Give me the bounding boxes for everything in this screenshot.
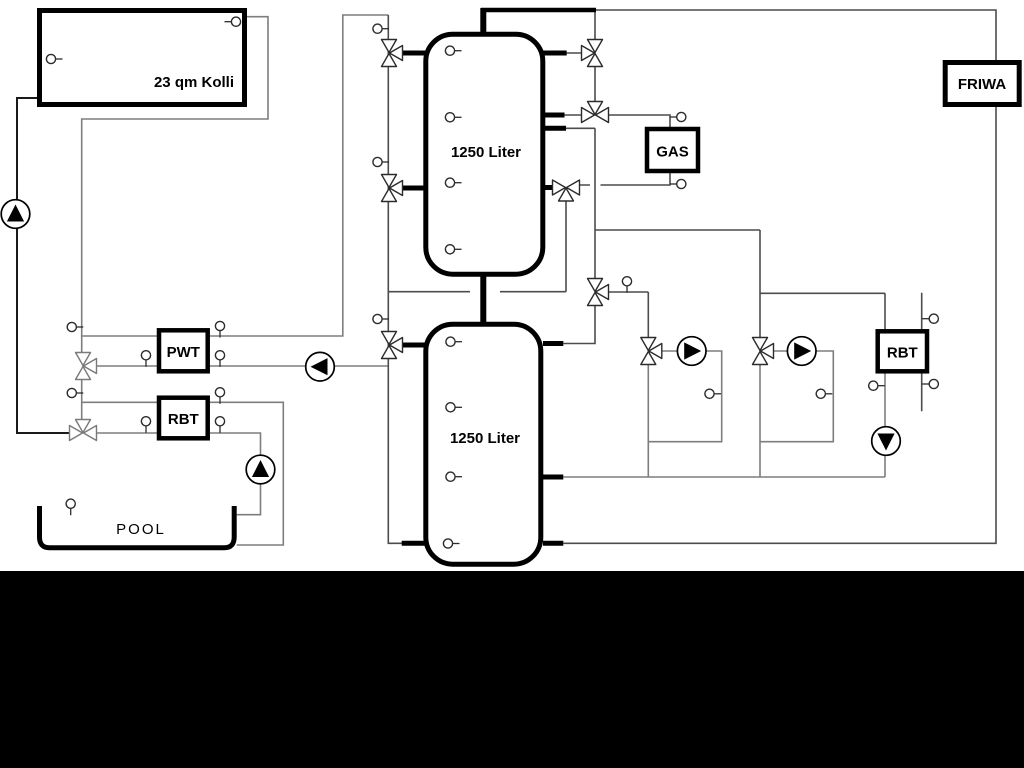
temperature-sensor-icon-circuit-1 (705, 389, 721, 398)
tank-upper-label: 1250 Liter (451, 144, 521, 161)
three-way-valve-icon-rbt-left (70, 420, 97, 441)
three-way-valve-icon-tank-upper-top (382, 40, 403, 67)
three-way-valve-icon-tank-upper-mid (382, 175, 403, 202)
hydraulic-diagram: 23 qm Kolli 1250 Liter 1250 Liter GAS FR… (0, 0, 1024, 768)
temperature-sensor-icon-solar-return-2 (67, 388, 83, 397)
rbt-left-bottom-pipe (97, 433, 261, 515)
temperature-sensor-icon-pwt-out (215, 351, 224, 367)
temperature-sensor-icon-valve-3 (373, 314, 389, 323)
bottom-black-bar (0, 571, 1024, 768)
temperature-sensor-icon-rbt-left-in (141, 417, 150, 433)
pwt-label: PWT (167, 344, 200, 361)
gas-boiler: GAS (647, 129, 698, 171)
heating-circuit-2-pipe (760, 351, 833, 477)
temperature-sensor-icon-rbt-right-top (922, 314, 938, 323)
solar-flow-pipe (17, 98, 70, 433)
tank-lower-label: 1250 Liter (450, 430, 520, 447)
three-way-valve-icon-gas-return (553, 180, 580, 201)
temperature-sensor-icon-rbt-left-top (215, 388, 224, 404)
three-way-valve-icon-tank-lower (382, 332, 403, 359)
temperature-sensor-icon-solar-return (67, 322, 83, 331)
mid-valve-pipes (563, 292, 648, 344)
collector-label: 23 qm Kolli (154, 74, 234, 91)
solar-collector: 23 qm Kolli (40, 11, 245, 105)
three-way-valve-icon-gas-supply (582, 102, 609, 123)
temperature-sensor-icon-valve-2 (373, 157, 389, 166)
three-way-valve-icon-boiler-top (582, 40, 603, 67)
tank-valve-column-pipe (388, 15, 402, 543)
pool-basin: POOL (40, 506, 235, 548)
return-pipe (563, 373, 885, 477)
temperature-sensor-icon-gas-supply (670, 112, 686, 121)
temperature-sensor-icon-rbt-right-bottom (922, 379, 938, 388)
rbt-left-label: RBT (168, 411, 199, 428)
pump-icon-solar (1, 200, 30, 229)
temperature-sensor-icon-distribution (622, 277, 631, 293)
pump-icon-pool (246, 455, 275, 484)
temperature-sensor-icon-valve-1 (373, 24, 389, 33)
rbt-right-label: RBT (887, 345, 918, 362)
distribution-pipes (566, 128, 885, 337)
temperature-sensor-icon-pwt-top (215, 321, 224, 337)
temperature-sensor-icon-circuit-2 (816, 389, 832, 398)
heating-circuit-1-pipe (648, 351, 721, 477)
friwa-label: FRIWA (958, 76, 1006, 93)
three-way-valve-icon-pwt (76, 353, 97, 380)
rbt-left-heat-exchanger: RBT (159, 398, 208, 439)
three-way-valve-icon-circuit-2 (753, 338, 774, 365)
three-way-valve-icon-circuit-1 (641, 338, 662, 365)
schematic-page: 23 qm Kolli 1250 Liter 1250 Liter GAS FR… (0, 0, 1024, 768)
temperature-sensor-icon-pwt-in (141, 351, 150, 367)
pump-icon-circuit-2 (787, 337, 816, 366)
temperature-sensor-icon-rbt-left-out (215, 417, 224, 433)
pump-icon-pwt (306, 352, 335, 381)
pump-icon-rbt-right (872, 427, 901, 456)
buffer-tank-lower: 1250 Liter (426, 324, 541, 564)
rbt-right-heat-exchanger: RBT (878, 331, 927, 371)
gas-label: GAS (656, 144, 689, 161)
three-way-valve-icon-distribution (588, 279, 609, 306)
temperature-sensor-icon-gas-return (670, 179, 686, 188)
friwa-station: FRIWA (945, 63, 1019, 105)
pool-label: POOL (116, 521, 166, 538)
pwt-heat-exchanger: PWT (159, 330, 208, 371)
buffer-tank-upper: 1250 Liter (426, 34, 543, 274)
pump-icon-circuit-1 (677, 337, 706, 366)
temperature-sensor-icon-rbt-right-out (869, 381, 885, 390)
